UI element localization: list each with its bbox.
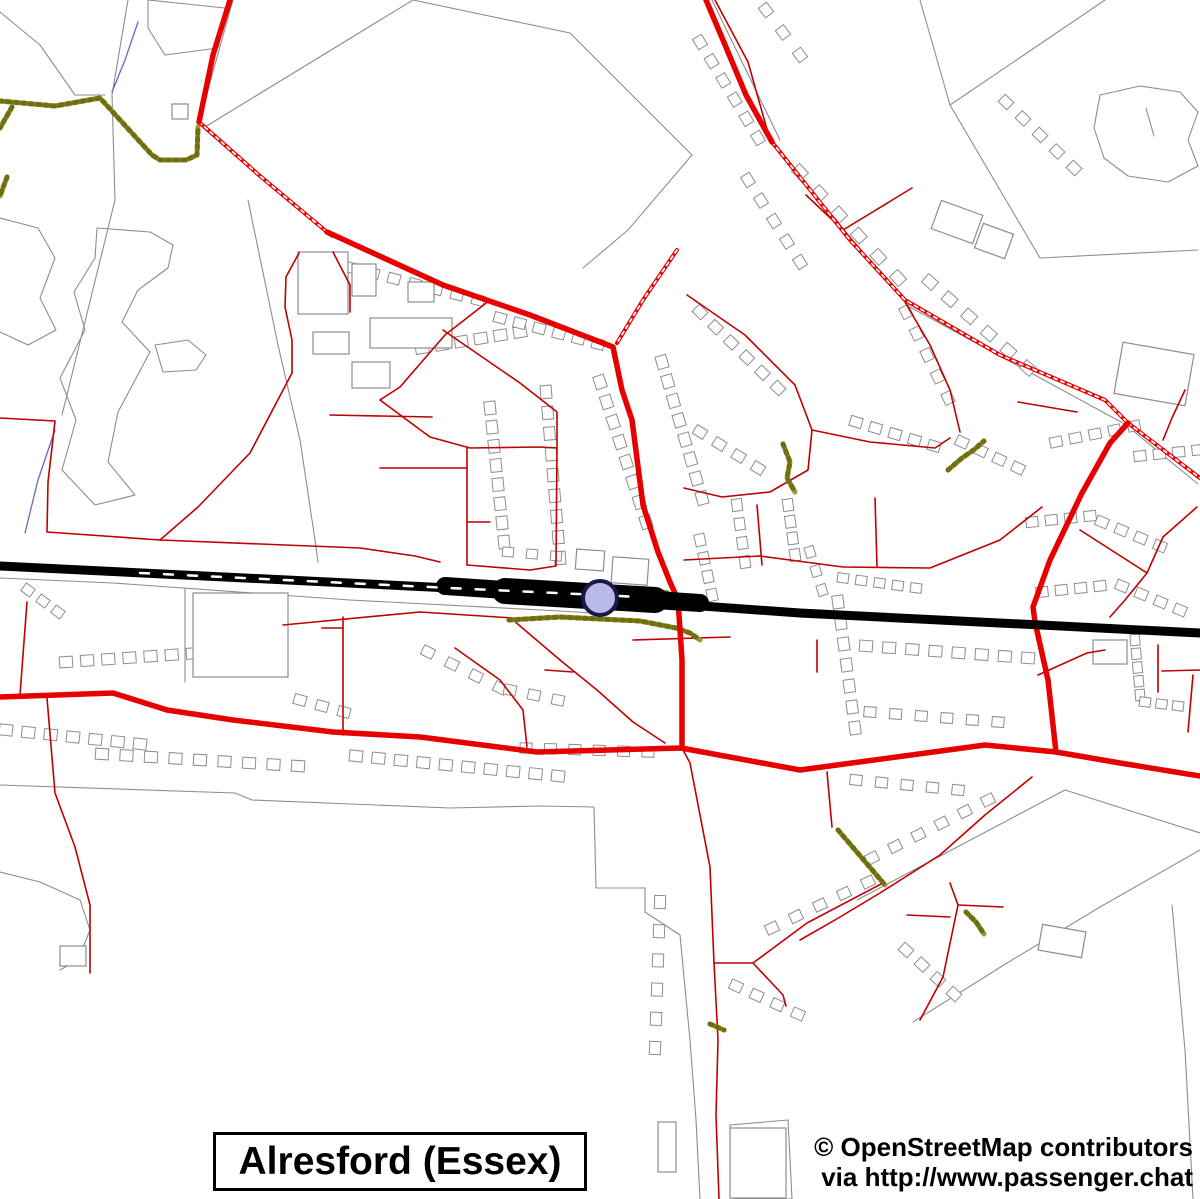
building xyxy=(549,489,561,503)
building xyxy=(144,650,158,662)
building xyxy=(931,200,983,243)
building xyxy=(593,374,608,390)
building xyxy=(998,94,1014,110)
building xyxy=(704,53,719,69)
building xyxy=(712,437,728,452)
building xyxy=(575,549,604,571)
building xyxy=(810,564,822,577)
building xyxy=(770,380,786,396)
building xyxy=(551,694,565,706)
building xyxy=(730,1128,786,1198)
building xyxy=(1094,580,1107,591)
building xyxy=(1093,640,1127,664)
building xyxy=(792,254,807,270)
building xyxy=(506,765,520,777)
building xyxy=(740,172,755,188)
building xyxy=(80,655,94,667)
building xyxy=(488,439,500,453)
building xyxy=(875,777,888,788)
building xyxy=(914,957,930,973)
building xyxy=(1134,675,1144,687)
railway-station-marker xyxy=(583,581,617,615)
building xyxy=(849,721,862,735)
building xyxy=(1021,652,1035,664)
station-layer xyxy=(583,581,617,615)
building xyxy=(723,335,739,351)
building xyxy=(654,895,665,908)
building xyxy=(218,756,232,768)
building xyxy=(473,332,488,345)
attribution-line-2: via http://www.passenger.chat xyxy=(814,1162,1193,1192)
building xyxy=(1055,584,1068,595)
building xyxy=(123,652,137,664)
building xyxy=(837,637,850,651)
building xyxy=(551,770,565,782)
building xyxy=(790,1007,805,1021)
building xyxy=(1088,428,1102,440)
building xyxy=(672,412,686,428)
building xyxy=(1084,510,1097,521)
building xyxy=(484,401,496,415)
building xyxy=(694,533,707,547)
building xyxy=(494,497,506,511)
building xyxy=(966,714,979,725)
building xyxy=(952,784,965,795)
map-title: Alresford (Essex) xyxy=(239,1140,562,1184)
building xyxy=(439,759,453,771)
building xyxy=(915,710,928,721)
building xyxy=(543,427,555,441)
building xyxy=(95,748,109,760)
building xyxy=(961,308,978,325)
building xyxy=(1155,699,1167,710)
building xyxy=(689,471,703,487)
building xyxy=(926,782,939,793)
building xyxy=(352,264,376,296)
building xyxy=(836,886,851,900)
building xyxy=(133,738,147,750)
water-layer xyxy=(25,22,138,533)
building xyxy=(792,47,807,63)
building xyxy=(782,498,794,511)
building xyxy=(843,679,856,693)
building xyxy=(144,751,158,763)
building xyxy=(484,763,498,775)
building xyxy=(992,452,1007,466)
building xyxy=(1095,515,1110,529)
building xyxy=(731,498,743,511)
building xyxy=(846,700,859,714)
building xyxy=(731,449,747,464)
building xyxy=(492,478,504,492)
building xyxy=(486,420,498,434)
building xyxy=(0,724,13,736)
building xyxy=(619,454,634,470)
building xyxy=(1192,444,1200,455)
attribution-line-1: © OpenStreetMap contributors xyxy=(814,1132,1193,1162)
building xyxy=(779,234,794,250)
map-canvas xyxy=(0,0,1200,1199)
building xyxy=(816,583,828,596)
building xyxy=(293,693,307,706)
building xyxy=(193,593,288,677)
building xyxy=(702,570,715,584)
building xyxy=(716,73,731,89)
building xyxy=(934,816,949,830)
building xyxy=(921,274,938,291)
building xyxy=(750,461,766,476)
building xyxy=(193,754,207,766)
building xyxy=(909,326,923,341)
building xyxy=(502,547,514,557)
building xyxy=(910,583,922,594)
building xyxy=(529,768,543,780)
building xyxy=(661,374,675,390)
building xyxy=(882,642,896,654)
building xyxy=(352,362,390,388)
building xyxy=(468,669,483,683)
building xyxy=(889,708,902,719)
building xyxy=(165,649,179,661)
building xyxy=(490,458,502,472)
building xyxy=(692,304,708,320)
building xyxy=(755,365,771,381)
building xyxy=(901,779,914,790)
building xyxy=(242,757,256,769)
building xyxy=(739,111,754,127)
building xyxy=(873,578,885,589)
building xyxy=(666,393,680,409)
building xyxy=(416,757,430,769)
building xyxy=(998,650,1012,662)
building xyxy=(88,733,102,745)
building xyxy=(855,575,867,586)
roads-hatched-layer xyxy=(199,0,1200,478)
building xyxy=(1115,579,1130,593)
building xyxy=(1010,461,1025,475)
building xyxy=(444,657,459,671)
building xyxy=(658,1122,676,1172)
building xyxy=(655,354,669,370)
building xyxy=(1153,595,1168,609)
building xyxy=(788,909,803,923)
building xyxy=(552,530,564,544)
building xyxy=(532,322,546,335)
building xyxy=(804,545,816,558)
building xyxy=(526,549,538,559)
building xyxy=(868,421,882,434)
building xyxy=(1172,701,1184,712)
building xyxy=(832,595,845,609)
building xyxy=(775,25,790,41)
building xyxy=(1173,603,1188,617)
building xyxy=(1038,924,1086,957)
building xyxy=(1074,582,1087,593)
building xyxy=(975,649,989,661)
building xyxy=(784,515,796,528)
building xyxy=(892,580,904,591)
building xyxy=(1114,523,1129,537)
building xyxy=(753,193,768,209)
building xyxy=(606,414,621,430)
building xyxy=(337,705,351,718)
building xyxy=(540,385,552,399)
building xyxy=(371,752,385,764)
building xyxy=(612,434,627,450)
building xyxy=(864,706,877,717)
building xyxy=(21,583,35,597)
building xyxy=(66,731,80,743)
building xyxy=(267,759,281,771)
building xyxy=(527,689,541,701)
paths-layer xyxy=(0,98,984,1030)
building xyxy=(652,954,663,967)
building xyxy=(980,325,997,342)
building xyxy=(611,557,649,585)
building xyxy=(1139,697,1151,708)
map-attribution: © OpenStreetMap contributors via http://… xyxy=(814,1132,1193,1192)
building xyxy=(888,427,902,440)
building xyxy=(408,282,434,302)
building xyxy=(1032,127,1048,143)
building xyxy=(952,647,966,659)
building xyxy=(1045,514,1058,525)
building xyxy=(172,104,188,119)
building xyxy=(954,435,969,449)
building xyxy=(758,2,773,18)
building xyxy=(111,735,125,747)
building xyxy=(905,643,919,655)
building xyxy=(394,754,408,766)
building xyxy=(650,1012,661,1025)
building xyxy=(941,291,958,308)
building xyxy=(493,312,507,325)
building xyxy=(493,329,508,342)
building xyxy=(653,925,664,938)
building xyxy=(727,92,742,108)
building xyxy=(1134,450,1147,461)
building xyxy=(840,658,853,672)
building xyxy=(51,605,65,619)
building xyxy=(751,130,766,146)
building xyxy=(708,319,724,335)
building xyxy=(683,451,697,467)
building xyxy=(766,213,781,229)
building xyxy=(736,536,748,549)
building xyxy=(975,223,1014,258)
building xyxy=(36,594,50,608)
building xyxy=(59,656,73,668)
building xyxy=(812,898,827,912)
building xyxy=(1066,160,1082,176)
building xyxy=(860,875,875,889)
building xyxy=(734,517,746,530)
building xyxy=(291,760,305,772)
building xyxy=(1130,634,1140,646)
building xyxy=(349,750,363,762)
building xyxy=(930,369,944,384)
building xyxy=(728,979,743,993)
building xyxy=(850,774,863,785)
building xyxy=(1049,436,1063,448)
building xyxy=(545,447,557,461)
map-viewport: Alresford (Essex) © OpenStreetMap contri… xyxy=(0,0,1200,1199)
building xyxy=(787,532,799,545)
building xyxy=(21,726,35,738)
building xyxy=(298,252,348,314)
building xyxy=(101,653,115,665)
building xyxy=(980,793,995,807)
building xyxy=(692,425,708,440)
building xyxy=(169,753,183,765)
building xyxy=(1133,531,1148,545)
map-title-box: Alresford (Essex) xyxy=(213,1132,587,1191)
building xyxy=(370,318,452,348)
building xyxy=(1132,662,1142,674)
building xyxy=(651,983,662,996)
building xyxy=(739,350,755,366)
building xyxy=(929,645,943,657)
building xyxy=(888,839,903,853)
building xyxy=(420,645,435,659)
building xyxy=(940,712,953,723)
building xyxy=(60,946,86,966)
building xyxy=(649,1041,660,1054)
building xyxy=(1069,432,1083,444)
building xyxy=(678,432,692,448)
building xyxy=(496,516,508,530)
building xyxy=(599,394,614,410)
building xyxy=(898,942,914,958)
building xyxy=(1015,111,1031,127)
building xyxy=(387,272,401,285)
building xyxy=(859,640,873,652)
building xyxy=(770,998,785,1012)
building xyxy=(315,699,329,712)
building xyxy=(1153,539,1168,553)
building xyxy=(849,415,863,428)
building xyxy=(907,433,921,446)
building xyxy=(120,750,134,762)
building xyxy=(1049,144,1065,160)
building xyxy=(764,921,779,935)
building xyxy=(1131,648,1141,660)
building xyxy=(693,34,708,50)
building xyxy=(957,804,972,818)
building xyxy=(1134,587,1149,601)
building xyxy=(992,716,1005,727)
building xyxy=(749,988,764,1002)
building xyxy=(313,332,349,354)
building xyxy=(911,828,926,842)
building xyxy=(837,573,849,584)
building xyxy=(461,761,475,773)
